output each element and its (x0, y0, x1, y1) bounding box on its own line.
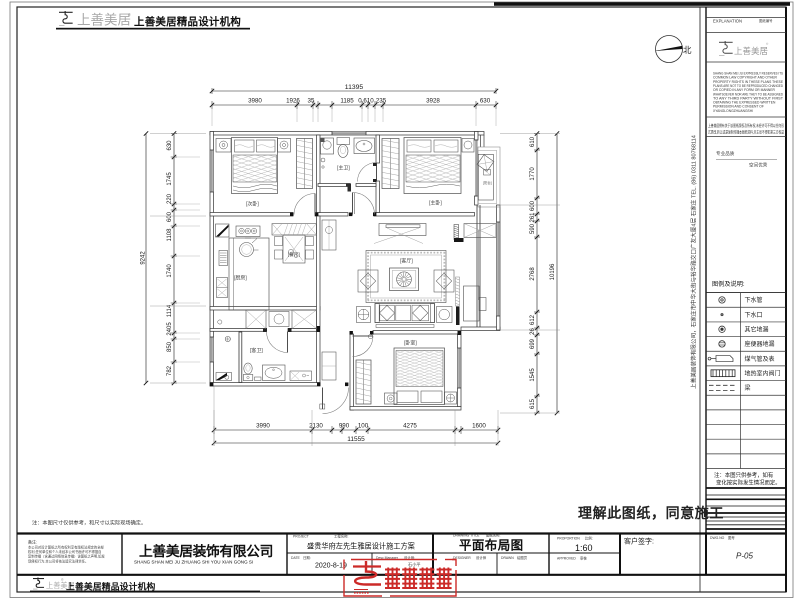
svg-text:上善美居精品设计机构: 上善美居精品设计机构 (66, 581, 156, 592)
svg-text:850: 850 (167, 341, 173, 352)
svg-text:图纸编号: 图纸编号 (759, 18, 773, 23)
svg-text:图号: 图号 (728, 535, 735, 540)
svg-text:10196: 10196 (550, 263, 556, 280)
svg-text:权利,任何单位和个人未经本公司书面许可不得擅自: 权利,任何单位和个人未经本公司书面许可不得擅自 (28, 549, 101, 554)
svg-text:235: 235 (376, 98, 387, 105)
svg-text:上善美居: 上善美居 (734, 46, 768, 56)
svg-text:DRAWING TITLE: DRAWING TITLE (453, 534, 480, 538)
svg-text:专业品质: 专业品质 (716, 150, 735, 157)
svg-text:4275: 4275 (403, 423, 417, 430)
svg-text:变化按实际发生情况而定。: 变化按实际发生情况而定。 (716, 479, 781, 487)
svg-text:座便器地漏: 座便器地漏 (745, 340, 775, 348)
svg-text:100: 100 (358, 423, 369, 430)
svg-text:XYANGLONGZHUANGSHI: XYANGLONGZHUANGSHI (713, 109, 753, 113)
svg-text:®: ® (128, 12, 131, 17)
svg-text:梁: 梁 (745, 384, 751, 392)
svg-text:现侵权行为,本公司将依法追究法律责任。: 现侵权行为,本公司将依法追究法律责任。 (28, 558, 88, 563)
svg-text:DATE: DATE (291, 556, 301, 560)
svg-text:图纸名称:: 图纸名称: (486, 533, 501, 538)
svg-text:699: 699 (530, 338, 536, 349)
svg-text:图例及说明:: 图例及说明: (712, 280, 745, 288)
svg-text:审核: 审核 (580, 556, 587, 561)
svg-text:煤气管及表: 煤气管及表 (745, 355, 775, 363)
svg-text:P-05: P-05 (736, 552, 753, 561)
svg-text:2020-8-19: 2020-8-19 (315, 563, 347, 570)
svg-text:绘图员: 绘图员 (517, 555, 528, 560)
svg-text:备注:: 备注: (28, 539, 37, 545)
svg-text:1545: 1545 (530, 368, 536, 382)
svg-text:SHANG SHAN MEI JU ZHUANG SHI Y: SHANG SHAN MEI JU ZHUANG SHI YOU XIAN GO… (134, 560, 253, 565)
svg-text:注：本图只供参考，如有: 注：本图只供参考，如有 (714, 471, 774, 479)
svg-text:APPROVED: APPROVED (557, 557, 576, 561)
svg-text:盛贵华府左先生雅居设计施工方案: 盛贵华府左先生雅居设计施工方案 (307, 542, 415, 551)
svg-text:0.610: 0.610 (358, 98, 374, 105)
svg-text:上善美居: 上善美居 (77, 13, 131, 28)
svg-text:北: 北 (683, 45, 692, 55)
svg-text:1740: 1740 (167, 264, 173, 278)
svg-text:其它地漏: 其它地漏 (745, 325, 769, 333)
svg-text:石小平: 石小平 (408, 561, 421, 568)
svg-text:EXPLANATION: EXPLANATION (713, 19, 742, 24)
svg-text:1745: 1745 (167, 172, 173, 186)
svg-text:上善美居拥有关于该图纸版权及所有权,未经许可不得以任何形: 上善美居拥有关于该图纸版权及所有权,未经许可不得以任何形 (708, 122, 784, 128)
svg-text:本公司对设计图纸之所有权利享有版权法规定的全部: 本公司对设计图纸之所有权利享有版权法规定的全部 (28, 545, 105, 550)
svg-text:注：本图尺寸仅供参考，和尺寸以实际现场确定。: 注：本图尺寸仅供参考，和尺寸以实际现场确定。 (32, 519, 146, 527)
svg-text:地热室内阀门: 地热室内阀门 (745, 369, 781, 377)
svg-text:PROPORTION: PROPORTION (557, 537, 580, 541)
svg-text:上善美居装饰有限公司，石家庄市中华大街与裕华路交口广友大厦4: 上善美居装饰有限公司，石家庄市中华大街与裕华路交口广友大厦4层 石家庄 TEL.… (690, 135, 698, 389)
svg-text:1926: 1926 (286, 98, 300, 105)
svg-text:782: 782 (167, 365, 173, 376)
svg-text:9242: 9242 (141, 251, 147, 265)
svg-text:[次卧]: [次卧] (246, 201, 259, 208)
svg-text:复制传播（含通过网络信息传播）该图纸之声明,如发: 复制传播（含通过网络信息传播）该图纸之声明,如发 (28, 554, 105, 559)
svg-text:615: 615 (530, 398, 536, 409)
svg-text:630: 630 (480, 98, 491, 105)
svg-text:下水管: 下水管 (745, 296, 763, 304)
svg-text:1600: 1600 (472, 423, 486, 430)
svg-text:®: ® (61, 578, 64, 582)
svg-text:[卧室]: [卧室] (404, 340, 417, 347)
svg-text:空间优秀: 空间优秀 (749, 162, 768, 169)
svg-text:式更改,转让或是复制传播本图纸资料,未主张不侵犯第三方权益: 式更改,转让或是复制传播本图纸资料,未主张不侵犯第三方权益 (708, 129, 784, 135)
svg-text:630: 630 (167, 140, 173, 151)
svg-text:1770: 1770 (530, 167, 536, 181)
svg-text:590: 590 (530, 223, 536, 234)
svg-text:[厨房]: [厨房] (234, 275, 247, 282)
svg-text:610: 610 (530, 136, 536, 147)
svg-text:3990: 3990 (256, 423, 270, 430)
svg-text:600: 600 (530, 200, 536, 211)
svg-text:[客厅]: [客厅] (400, 258, 413, 265)
svg-text:26: 26 (530, 328, 536, 335)
svg-text:612: 612 (530, 314, 536, 325)
svg-text:220: 220 (167, 193, 173, 204)
svg-text:DWG.NO: DWG.NO (710, 536, 725, 540)
svg-text:2768: 2768 (530, 267, 536, 281)
svg-text:客户签字:: 客户签字: (624, 537, 654, 546)
svg-text:11555: 11555 (347, 436, 365, 443)
svg-text:平面布局图: 平面布局图 (459, 538, 524, 553)
svg-text:2405: 2405 (167, 322, 173, 336)
svg-text:工程名称:: 工程名称: (334, 534, 349, 539)
svg-text:3928: 3928 (426, 98, 440, 105)
svg-text:990: 990 (339, 423, 350, 430)
svg-text:2130: 2130 (309, 423, 323, 430)
svg-text:上善美居精品设计机构: 上善美居精品设计机构 (134, 15, 241, 28)
svg-text:上善美居装饰有限公司: 上善美居装饰有限公司 (139, 543, 273, 559)
svg-text:PROJECT: PROJECT (293, 535, 309, 539)
svg-text:理解此图纸，同意施工: 理解此图纸，同意施工 (578, 505, 724, 521)
svg-text:[客卫]: [客卫] (250, 347, 263, 354)
svg-text:[主卧]: [主卧] (429, 200, 442, 207)
svg-text:1108: 1108 (167, 228, 173, 242)
svg-text:下水口: 下水口 (745, 311, 763, 319)
svg-text:[餐厅]: [餐厅] (288, 251, 300, 258)
svg-text:261: 261 (530, 212, 536, 223)
svg-text:[阳台]: [阳台] (483, 180, 492, 185)
svg-text:600: 600 (167, 211, 173, 222)
svg-text:11395: 11395 (345, 84, 364, 91)
svg-text:[主卫]: [主卫] (337, 165, 350, 172)
svg-text:日期:: 日期: (303, 555, 311, 560)
svg-text:1:60: 1:60 (575, 543, 593, 553)
svg-text:比例:: 比例: (585, 536, 593, 541)
svg-text:DRAWN: DRAWN (501, 556, 514, 560)
svg-text:3980: 3980 (248, 98, 262, 105)
svg-text:1185: 1185 (340, 98, 354, 105)
svg-text:35: 35 (308, 98, 315, 105)
svg-text:设计师: 设计师 (476, 555, 487, 560)
